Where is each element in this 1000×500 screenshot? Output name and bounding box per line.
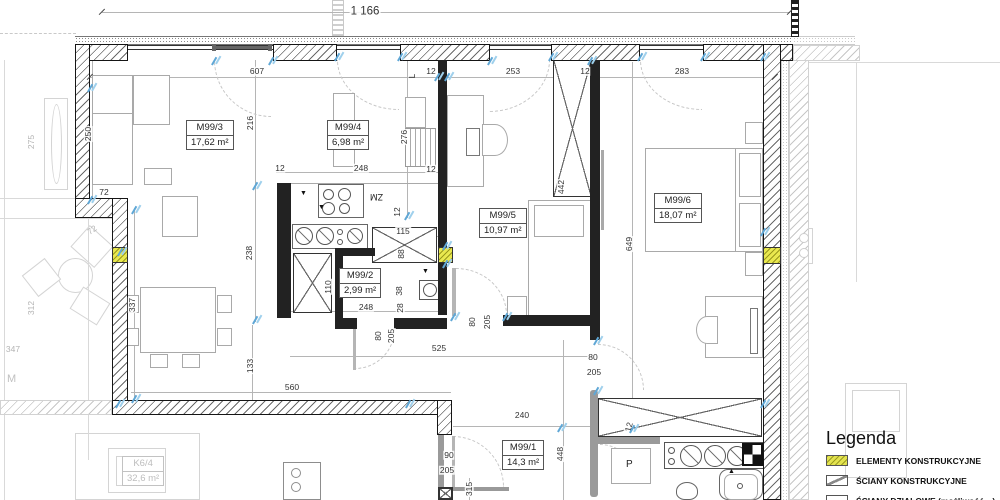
room-label-k6-4: K6/4 32,6 m²: [122, 456, 164, 486]
plant-leaf: [51, 104, 62, 184]
room-id: M99/4: [328, 121, 368, 136]
washbasin: [704, 445, 726, 467]
balcony-door-panel: [214, 46, 271, 49]
sofa-cushion-line: [92, 113, 133, 114]
dimension-label: 205: [387, 328, 396, 344]
neighbor-wall-line: [809, 62, 1000, 63]
exterior-wall-bottom: [112, 400, 452, 415]
room-id: M99/6: [655, 194, 701, 209]
stove-burner: [338, 188, 351, 201]
dimension-label: 80: [374, 330, 383, 341]
room-label-m99-2: M99/2 2,99 m²: [339, 268, 381, 298]
dimension-label: 448: [556, 446, 565, 462]
door-leaf: [452, 436, 455, 487]
dimension-label: 12: [425, 67, 436, 76]
dimension-label: 525: [431, 344, 447, 353]
dimension-label: 649: [625, 236, 634, 252]
washbasin: [680, 445, 702, 467]
door-swing-arc: [453, 436, 504, 487]
exterior-wall-pier: [400, 44, 490, 61]
dimension-label: 240: [514, 411, 530, 420]
dimension-label: 442: [557, 179, 566, 195]
dimension-label: 276: [400, 129, 409, 145]
room-label-m99-5: M99/5 10,97 m²: [479, 208, 527, 238]
pillow: [534, 205, 584, 237]
room-area: 32,6 m²: [123, 472, 163, 486]
dimension-label: 1 166: [350, 6, 381, 18]
neighbor-text: M: [7, 374, 16, 385]
wall-bedroom5-hall: [503, 315, 600, 326]
legend-swatch-diagonal: [826, 475, 848, 486]
dining-chair: [217, 295, 232, 313]
neighbor-wall-right: [789, 60, 809, 500]
neighbor-burner: [291, 482, 301, 492]
dimension-label: 315: [465, 481, 474, 497]
dimension-label: 133: [246, 358, 255, 374]
dimension-label: 12: [579, 67, 590, 76]
upper-partition-strip: [332, 0, 344, 36]
exterior-wall-pier: [551, 44, 640, 61]
bed-headboard-line: [735, 148, 736, 252]
wardrobe: [553, 60, 592, 197]
side-table: [144, 168, 172, 185]
room-area: 14,3 m²: [503, 456, 543, 470]
bathtub-drain: [737, 483, 743, 489]
exterior-wall-left: [75, 44, 90, 200]
nightstand: [507, 296, 527, 316]
door-leaf: [452, 268, 456, 316]
legend-label: ŚCIANY DZIAŁOWE (możliwość…): [856, 496, 995, 500]
sofa-cushion-line: [133, 75, 134, 125]
room-label-m99-4: M99/4 6,98 m²: [327, 120, 369, 150]
washing-machine-label: P: [626, 460, 633, 470]
dimension-label: 312: [27, 300, 36, 316]
dimension-label: 275: [27, 134, 36, 150]
desk-chair: [696, 316, 718, 344]
balcony-door-handle: [212, 44, 216, 51]
legend-row: ŚCIANY DZIAŁOWE (możliwość…): [826, 495, 1000, 500]
neighbor-fixture-circle: [799, 233, 809, 243]
balcony-door-handle: [268, 44, 272, 51]
dimension-line-muted: [88, 200, 89, 460]
room-id: M99/3: [187, 121, 233, 136]
wall-kitchen-bedroom: [438, 60, 447, 315]
armchair: [162, 196, 198, 237]
legend-row: ELEMENTY KONSTRUKCYJNE: [826, 455, 1000, 467]
exterior-wall-step: [75, 198, 113, 218]
dimension-label: 250: [84, 126, 93, 142]
structural-element: [763, 247, 781, 264]
dimension-label: 88: [397, 248, 406, 259]
wall-wc-south: [335, 318, 357, 329]
dimension-line: [453, 426, 590, 427]
dining-chair: [150, 354, 168, 368]
faucet-dot: [337, 239, 343, 245]
survey-tick-icon: [252, 316, 258, 325]
balcony-floor-line: [0, 198, 75, 199]
fridge: [405, 128, 436, 167]
faucet-dot: [337, 229, 343, 235]
dimension-label: 216: [246, 115, 255, 131]
neighbor-cabinet-inner: [852, 390, 900, 432]
exterior-wall-bottom-step: [437, 400, 452, 435]
dimension-label: 253: [505, 67, 521, 76]
room-area: 17,62 m²: [187, 136, 233, 150]
dishwasher-label: ZM: [370, 192, 383, 201]
kitchen-cabinet: [405, 97, 426, 128]
wall-bedrooms: [590, 60, 600, 340]
exterior-wall-right: [763, 44, 781, 500]
arrow-icon: ▼: [422, 268, 429, 275]
dimension-label: 607: [249, 67, 265, 76]
wall-kitchen-west: [277, 183, 291, 318]
pillow: [739, 153, 761, 197]
dimension-label: 12: [425, 165, 436, 174]
dining-chair: [217, 328, 232, 346]
dimension-line: [563, 340, 564, 500]
window: [337, 45, 400, 50]
dimension-label: 205: [483, 314, 492, 330]
sink-basin: [347, 228, 363, 244]
wall-wc-south: [394, 318, 447, 329]
dimension-label: 72: [98, 188, 109, 197]
floor-plan: ▼ ▼ ▼ ▲ M99/3 17,62 m² M99/4 6,98: [0, 0, 1000, 500]
monitor: [750, 308, 758, 354]
arrow-icon: ▼: [318, 204, 325, 211]
room-area: 10,97 m²: [480, 224, 526, 238]
insulation-strip-top-neighbor: [793, 36, 855, 45]
room-area: 6,98 m²: [328, 136, 368, 150]
survey-tick-icon: [450, 313, 456, 322]
neighbor-wall-line: [856, 62, 857, 282]
nightstand: [745, 252, 763, 276]
door-leaf: [353, 329, 356, 370]
neighbor-wall-bottom-left: [0, 400, 112, 415]
toilet: [676, 482, 698, 500]
legend-label: ŚCIANY KONSTRUKCYJNE: [856, 476, 967, 486]
exterior-wall-pier: [273, 44, 337, 61]
dimension-label: 248: [358, 303, 374, 312]
entrance-door: [438, 487, 453, 500]
dimension-label: 283: [674, 67, 690, 76]
window: [490, 45, 551, 50]
room-label-m99-3: M99/3 17,62 m²: [186, 120, 234, 150]
counter-edge-line: [291, 183, 447, 184]
window-swing-arc: [640, 60, 702, 110]
wall-wc-north: [335, 248, 375, 256]
arrow-icon: ▼: [300, 190, 307, 197]
room-area: 2,99 m²: [340, 284, 380, 298]
neighbor-wall-top: [793, 45, 860, 61]
shaft-symbol: [742, 443, 763, 466]
section-marker-bar: [791, 0, 799, 37]
dimension-label: 80: [587, 353, 598, 362]
arrow-icon: ▲: [728, 468, 735, 475]
legend-swatch-partition: [826, 495, 848, 500]
balcony-edge-line: [4, 60, 5, 500]
wall-bathroom-north: [597, 437, 660, 444]
window: [640, 45, 703, 50]
room-label-m99-1: M99/1 14,3 m²: [502, 440, 544, 470]
exterior-wall-left-lower: [112, 198, 128, 415]
monitor: [466, 128, 480, 156]
dimension-label: 205: [439, 466, 455, 475]
dimension-label: 38: [395, 285, 404, 296]
room-id: M99/1: [503, 441, 543, 456]
dimension-label: 80: [468, 316, 477, 327]
dimension-label: 347: [5, 345, 21, 354]
fridge-label: L: [409, 74, 417, 78]
desk-chair: [482, 124, 508, 156]
dimension-label: 28: [396, 302, 405, 313]
sink-basin: [295, 227, 313, 245]
dimension-label: 337: [128, 297, 137, 313]
dimension-label: 238: [245, 245, 254, 261]
dimension-label: 90: [443, 451, 454, 460]
sink-basin: [316, 227, 334, 245]
dimension-label: 248: [353, 164, 369, 173]
nightstand: [745, 122, 763, 144]
room-id: M99/5: [480, 209, 526, 224]
dining-chair: [182, 354, 200, 368]
room-id: M99/2: [340, 269, 380, 284]
legend-swatch-yellow: [826, 455, 848, 466]
room-label-m99-6: M99/6 18,07 m²: [654, 193, 702, 223]
room-area: 18,07 m²: [655, 209, 701, 223]
dimension-label: 115: [395, 227, 411, 236]
dimension-line: [131, 392, 451, 393]
dimension-label: 205: [586, 368, 602, 377]
dashed-boundary-line: [0, 33, 76, 34]
survey-tick-icon: [268, 57, 274, 66]
stove-burner: [323, 189, 334, 200]
balcony-floor-line2: [0, 218, 112, 219]
survey-tick-icon: [404, 212, 410, 221]
legend-row: ŚCIANY KONSTRUKCYJNE: [826, 475, 1000, 487]
mirror-line: [601, 150, 604, 230]
neighbor-fixture-circle: [799, 248, 809, 258]
balcony-chair: [22, 258, 61, 297]
room-id: K6/4: [123, 457, 163, 472]
cabinet-knob: [668, 447, 675, 454]
entrance-door-sill: [453, 487, 509, 491]
wc-bowl-circle: [423, 283, 437, 297]
dimension-label: 110: [324, 279, 333, 295]
dimension-label: 12: [393, 206, 402, 217]
dimension-line: [290, 356, 590, 357]
door-swing-arc: [456, 268, 507, 315]
dining-table: [140, 287, 216, 353]
neighbor-burner: [291, 468, 301, 478]
cabinet-knob: [668, 458, 675, 465]
legend-label: ELEMENTY KONSTRUKCYJNE: [856, 456, 981, 466]
door-swing-arc: [598, 344, 644, 390]
sofa-chaise: [92, 75, 133, 185]
stove-burner: [339, 203, 350, 214]
legend-title: Legenda: [826, 428, 896, 449]
dimension-label: 12: [274, 164, 285, 173]
dimension-line: [102, 12, 790, 13]
neighbor-stove: [283, 462, 321, 500]
pillow: [739, 203, 761, 247]
dimension-label: 560: [284, 383, 300, 392]
wall-hall-partition: [438, 435, 444, 487]
insulation-strip-right: [781, 60, 789, 500]
